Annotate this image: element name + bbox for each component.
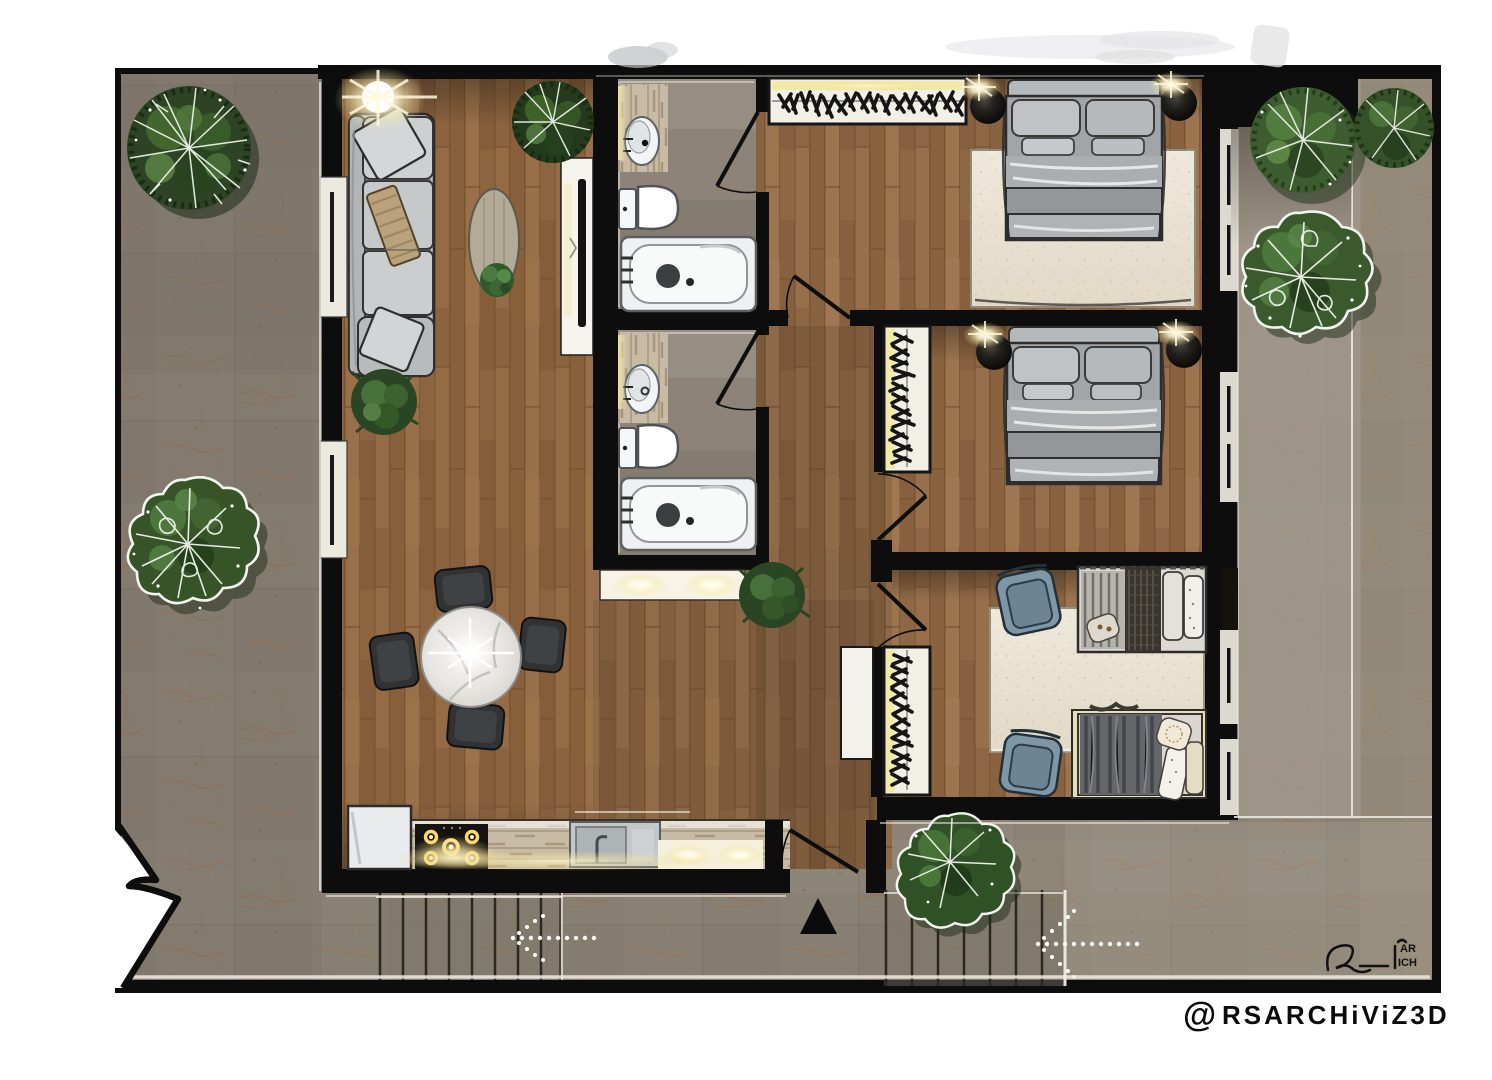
svg-text:ICH: ICH [1398,957,1417,969]
svg-text:RSARCHiViZ3D: RSARCHiViZ3D [1222,1000,1450,1030]
svg-text:@: @ [1183,996,1216,1034]
svg-text:AR: AR [1400,943,1416,955]
